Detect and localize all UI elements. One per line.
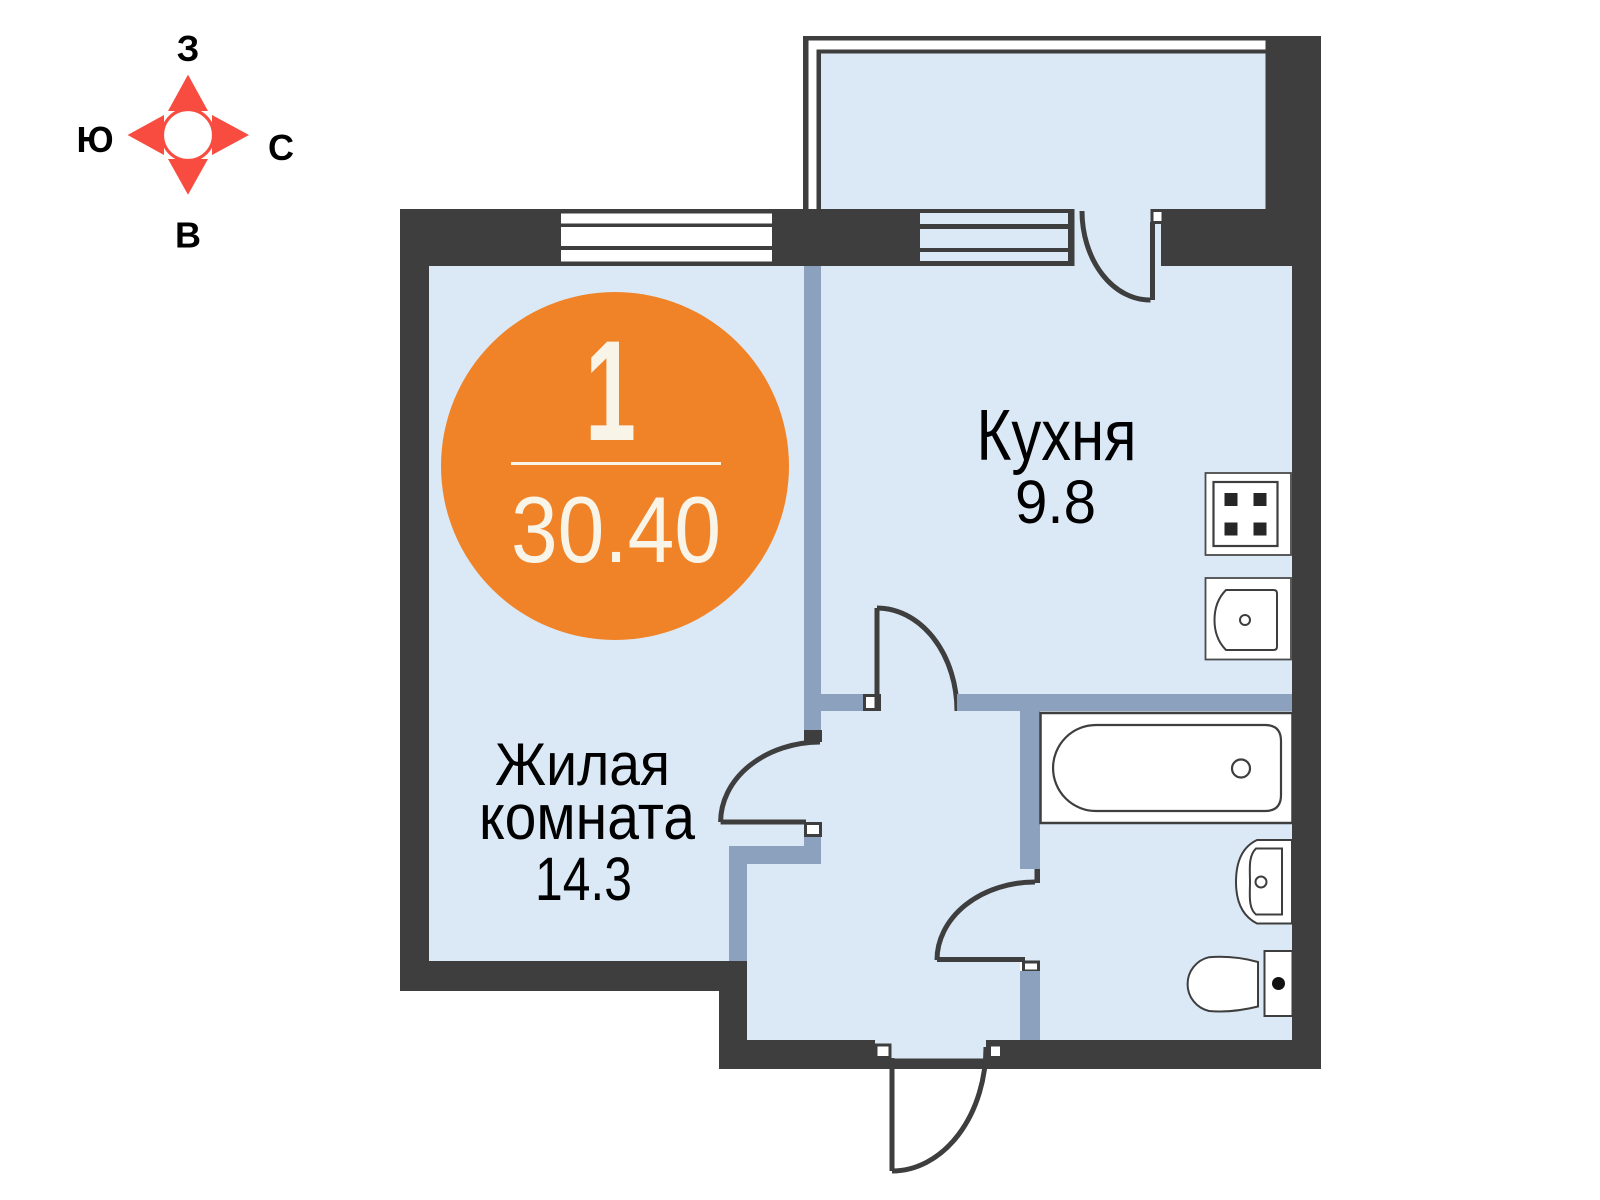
svg-text:14.3: 14.3 [535, 845, 632, 913]
svg-text:1: 1 [585, 312, 636, 471]
svg-text:комната: комната [479, 781, 695, 853]
svg-text:В: В [175, 215, 201, 256]
svg-text:З: З [177, 28, 200, 69]
svg-text:Кухня: Кухня [977, 396, 1137, 476]
svg-text:С: С [268, 127, 294, 168]
svg-text:9.8: 9.8 [1015, 468, 1096, 536]
svg-text:Ю: Ю [76, 119, 113, 160]
svg-text:30.40: 30.40 [511, 477, 721, 582]
